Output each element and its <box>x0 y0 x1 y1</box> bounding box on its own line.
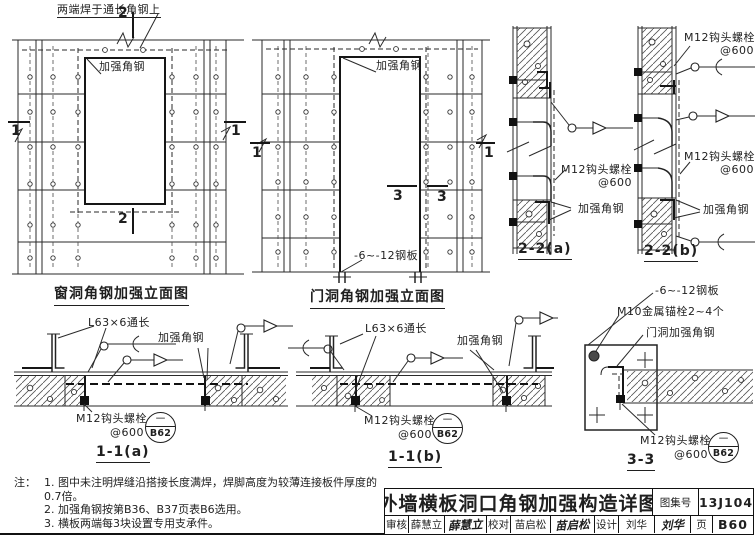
reinforcing-angle-label-22a: 加强角钢 <box>578 202 624 215</box>
angle-length-label-11a: L63×6通长 <box>88 316 150 329</box>
atlas-number: 13J104 <box>699 495 753 510</box>
bolt-circles <box>28 75 218 260</box>
general-notes: 注： 1. 图中未注明焊缝沿搭接长度满焊，焊脚高度为较薄连接板件厚度的0.7倍。… <box>14 476 386 530</box>
window-elevation-title: 窗洞角钢加强立面图 <box>54 283 189 306</box>
reviewer-name-cell: 薛慧立 <box>409 516 445 533</box>
section-mark-1-left-door: 1 <box>252 146 262 160</box>
note-item: 1. 图中未注明焊缝沿搭接长度满焊，焊脚高度为较薄连接板件厚度的0.7倍。 <box>44 476 386 503</box>
reviewer-signature-cell: 薛慧立 <box>445 516 487 533</box>
bolt-circles <box>276 75 474 254</box>
weld-flag-icon <box>716 110 729 122</box>
section-11a-title: 1-1(a) <box>96 444 150 463</box>
title-block: 外墙横板洞口角钢加强构造详图 图集号 13J104 审核 薛慧立 薛慧立 校对 … <box>384 488 754 535</box>
angle-length-label-11b: L63×6通长 <box>365 322 427 335</box>
reviewer-name: 薛慧立 <box>411 517 443 532</box>
detail-page: B62 <box>433 428 462 441</box>
door-opening <box>340 57 420 272</box>
reviewer-label-cell: 审核 <box>385 516 409 533</box>
detail-page: B62 <box>709 447 738 460</box>
bolt-spacing-22b-top: @600 <box>716 44 754 57</box>
section-mark-1-left: 1 <box>11 124 21 138</box>
bolt-spacing-22a: @600 <box>594 176 632 189</box>
page-number: B60 <box>718 517 748 532</box>
section-11b-title: 1-1(b) <box>388 449 442 468</box>
reinforcing-angle-label-11a: 加强角钢 <box>158 331 204 344</box>
page-label: 页 <box>696 517 707 532</box>
detail-reference-bubble-11b: 一 B62 <box>432 413 463 444</box>
drawing-title: 外墙横板洞口角钢加强构造详图 <box>385 489 653 515</box>
metal-anchor <box>589 351 599 361</box>
section-2-2a-drawing <box>505 22 633 262</box>
note-item: 2. 加强角钢按第B36、B37页表B6选用。 <box>44 503 248 517</box>
section-mark-2-bottom: 2 <box>118 212 128 226</box>
reviewer-signature: 薛慧立 <box>448 516 483 533</box>
bolt-spacing-11b: @600 <box>376 428 432 441</box>
designer-signature: 刘华 <box>661 516 685 533</box>
checker-label: 校对 <box>488 517 509 532</box>
detail-number: 一 <box>709 433 738 447</box>
reinforcing-angle-label-22b: 加强角钢 <box>703 203 749 216</box>
detail-number: 一 <box>146 413 175 427</box>
reinforcing-angle-label-11b: 加强角钢 <box>457 334 503 347</box>
section-mark-1-right: 1 <box>231 124 241 138</box>
weld-flag-icon <box>593 122 606 134</box>
window-elevation-drawing <box>8 2 256 302</box>
anchor-label-33: M10金属锚栓2~4个 <box>617 305 724 318</box>
detail-reference-bubble-11a: 一 B62 <box>145 412 176 443</box>
weld-to-continuous-angle-callout: 两端焊于通长角钢上 <box>57 3 161 18</box>
checker-signature-cell: 苗启松 <box>551 516 595 533</box>
drawing-title-cell: 外墙横板洞口角钢加强构造详图 <box>385 489 653 515</box>
checker-name-cell: 苗启松 <box>511 516 551 533</box>
steel-plate-label-33: -6~-12钢板 <box>655 284 719 297</box>
bolt-spacing-22b-mid: @600 <box>716 163 754 176</box>
bolt-label-22b-mid: M12钩头螺栓 <box>684 150 754 163</box>
bolt-label-22a: M12钩头螺栓 <box>556 163 632 176</box>
section-mark-1-right-door: 1 <box>484 146 494 160</box>
weld-flag-icon <box>154 354 167 366</box>
weld-flag-icon <box>264 320 277 332</box>
steel-plate-label-door: -6~-12钢板 <box>354 249 418 262</box>
window-opening <box>85 58 165 204</box>
page-label-cell: 页 <box>691 516 713 533</box>
reinforcing-angle-label-door: 加强角钢 <box>376 59 422 72</box>
section-22a-title: 2-2(a) <box>518 241 572 260</box>
drawing-sheet: 2 两端焊于通长角钢上 加强角钢 1 1 2 窗洞角钢加强立面图 <box>0 0 755 539</box>
note-item: 3. 横板两端每3块设置专用支承件。 <box>44 517 219 531</box>
section-mark-3-right: 3 <box>437 190 447 204</box>
bolt-label-22b-top: M12钩头螺栓 <box>684 31 754 44</box>
atlas-label-cell: 图集号 <box>653 489 699 515</box>
designer-label: 设计 <box>596 517 617 532</box>
section-mark-3-left: 3 <box>393 189 403 203</box>
bolt-spacing-33: @600 <box>652 448 708 461</box>
section-33-title: 3-3 <box>627 452 655 471</box>
bolt-label-11b: M12钩头螺栓 <box>364 414 432 427</box>
designer-signature-cell: 刘华 <box>655 516 691 533</box>
designer-label-cell: 设计 <box>595 516 619 533</box>
checker-label-cell: 校对 <box>487 516 511 533</box>
atlas-number-cell: 13J104 <box>699 489 753 515</box>
notes-prefix: 注： <box>14 476 44 503</box>
checker-signature: 苗启松 <box>555 516 590 533</box>
bolt-label-11a: M12钩头螺栓 <box>76 412 144 425</box>
detail-page: B62 <box>146 427 175 440</box>
designer-name-cell: 刘华 <box>619 516 655 533</box>
bolt-spacing-11a: @600 <box>88 426 144 439</box>
reviewer-label: 审核 <box>386 517 407 532</box>
sheet-bottom-rule <box>0 533 385 535</box>
door-angle-label-33: 门洞加强角钢 <box>646 326 715 339</box>
page-number-cell: B60 <box>713 516 753 533</box>
designer-name: 刘华 <box>626 517 647 532</box>
section-22b-title: 2-2(b) <box>644 243 698 262</box>
atlas-number-label: 图集号 <box>660 495 692 510</box>
detail-number: 一 <box>433 414 462 428</box>
reinforcing-angle-label-window: 加强角钢 <box>99 60 145 73</box>
weld-flag-icon <box>431 352 444 364</box>
bolt-label-33: M12钩头螺栓 <box>640 434 708 447</box>
weld-flag-icon <box>540 312 553 324</box>
detail-reference-bubble-33: 一 B62 <box>708 432 739 463</box>
checker-name: 苗启松 <box>515 517 547 532</box>
section-2-2b-drawing <box>632 22 755 262</box>
